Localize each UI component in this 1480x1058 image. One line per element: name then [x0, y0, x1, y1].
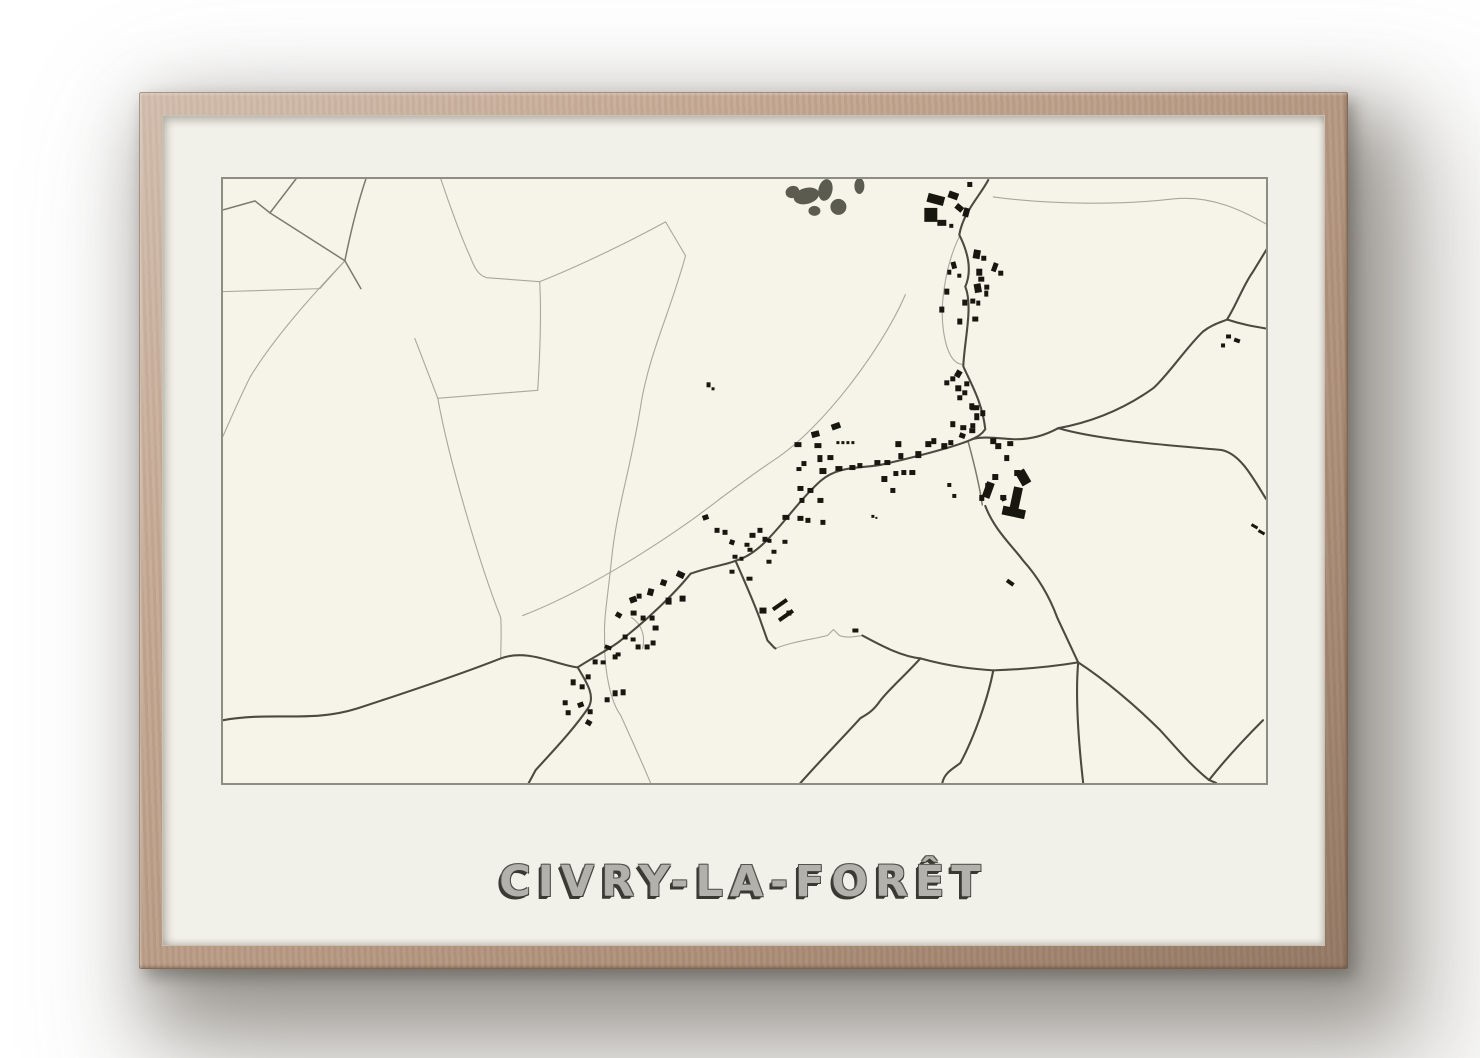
road: [775, 630, 862, 649]
building: [998, 271, 1003, 276]
building: [631, 611, 637, 616]
building: [957, 319, 962, 325]
building: [601, 660, 606, 664]
building: [767, 539, 771, 543]
building: [820, 520, 825, 525]
building: [950, 421, 955, 427]
building: [893, 471, 898, 476]
building: [571, 679, 576, 685]
poster-title: CIVRY-LA-FORÊT: [221, 857, 1266, 907]
building: [786, 611, 791, 616]
building: [762, 537, 767, 542]
building: [890, 488, 895, 493]
road: [1058, 428, 1266, 499]
road: [345, 179, 366, 289]
building: [747, 548, 752, 552]
road: [1227, 320, 1266, 329]
building: [970, 299, 975, 304]
building: [1007, 441, 1013, 446]
building: [947, 270, 951, 275]
building: [759, 608, 766, 614]
building: [782, 515, 789, 520]
building: [1221, 343, 1225, 347]
building: [992, 474, 998, 480]
building: [931, 438, 936, 444]
road: [270, 213, 345, 261]
road: [993, 197, 1266, 224]
building: [782, 540, 787, 544]
road: [223, 179, 296, 213]
building: [613, 690, 618, 696]
building: [1006, 579, 1015, 587]
photo-scene: CIVRY-LA-FORÊT: [0, 0, 1480, 1058]
road: [540, 222, 666, 282]
road: [441, 179, 540, 282]
building: [650, 616, 655, 621]
building: [851, 441, 854, 444]
town-map: [223, 179, 1266, 783]
building: [745, 543, 750, 547]
building: [959, 432, 966, 439]
building: [676, 570, 686, 579]
road: [1209, 720, 1263, 780]
forest-patch: [854, 179, 864, 194]
building: [924, 208, 937, 222]
building: [947, 190, 959, 200]
forest-patch: [808, 206, 820, 216]
building: [631, 637, 636, 641]
building: [797, 516, 803, 521]
building: [874, 460, 880, 465]
building: [563, 700, 568, 705]
building: [757, 528, 762, 533]
building: [566, 710, 571, 715]
building: [666, 598, 672, 605]
building: [981, 256, 986, 261]
building: [615, 611, 623, 618]
building: [796, 467, 801, 471]
building: [944, 380, 949, 385]
building: [636, 644, 641, 649]
building: [588, 709, 593, 714]
building: [605, 697, 610, 702]
building: [723, 530, 728, 535]
building: [884, 460, 890, 465]
building: [805, 518, 810, 523]
building: [974, 413, 979, 420]
building: [651, 640, 656, 645]
poster-frame: CIVRY-LA-FORÊT: [139, 92, 1348, 969]
building: [1234, 338, 1241, 344]
building: [925, 441, 931, 447]
building: [797, 486, 803, 491]
building: [964, 381, 969, 386]
building: [836, 441, 839, 444]
building: [984, 291, 988, 297]
building: [771, 550, 776, 554]
forest-patch: [816, 179, 834, 202]
road: [223, 261, 345, 292]
building: [593, 659, 598, 664]
building: [623, 634, 628, 639]
building: [819, 468, 826, 474]
building: [955, 385, 961, 391]
building: [973, 249, 981, 259]
building: [814, 443, 821, 448]
building: [799, 498, 804, 503]
building: [982, 481, 995, 499]
building: [730, 570, 735, 574]
building: [960, 425, 966, 430]
road: [415, 338, 538, 398]
building: [746, 577, 752, 581]
building: [653, 626, 659, 631]
building: [585, 719, 593, 726]
building: [969, 428, 975, 433]
road: [959, 180, 988, 439]
building: [949, 224, 953, 228]
building: [871, 515, 874, 518]
building: [970, 405, 975, 410]
building: [1004, 455, 1009, 461]
building: [976, 301, 980, 306]
building: [1258, 529, 1266, 535]
building: [967, 182, 972, 187]
building: [831, 422, 841, 431]
building: [729, 539, 735, 545]
building: [778, 609, 794, 622]
building: [616, 652, 621, 656]
road: [1077, 662, 1083, 783]
building: [772, 598, 788, 611]
road: [736, 561, 776, 649]
building: [895, 441, 901, 447]
road: [223, 261, 345, 436]
building: [817, 455, 822, 462]
building: [680, 596, 686, 602]
building: [901, 470, 906, 475]
road: [800, 658, 920, 783]
building: [1226, 334, 1231, 338]
building: [857, 463, 862, 468]
building: [954, 203, 964, 213]
building: [707, 382, 711, 387]
map-panel: [221, 177, 1268, 785]
building: [947, 483, 951, 487]
road: [438, 398, 501, 658]
building: [647, 588, 655, 596]
building: [952, 494, 956, 498]
building: [875, 517, 877, 519]
building: [835, 466, 842, 471]
building: [984, 285, 989, 290]
building: [849, 465, 855, 470]
road: [942, 237, 963, 365]
building: [944, 289, 949, 295]
building: [972, 317, 978, 322]
road: [223, 655, 578, 720]
building: [645, 644, 650, 649]
building: [807, 488, 813, 493]
building: [740, 557, 744, 561]
building: [957, 395, 962, 400]
building: [941, 443, 947, 449]
building: [909, 470, 915, 475]
building: [715, 528, 720, 533]
building: [970, 423, 975, 428]
poster-mat: CIVRY-LA-FORÊT: [162, 115, 1325, 946]
building: [712, 387, 715, 390]
building: [957, 274, 961, 278]
building: [660, 579, 668, 587]
building: [915, 451, 921, 458]
road: [1078, 662, 1216, 783]
building: [749, 533, 755, 538]
building: [801, 461, 806, 466]
building: [950, 376, 955, 381]
building: [898, 453, 903, 459]
building: [991, 262, 999, 272]
road: [538, 282, 541, 391]
building: [641, 616, 646, 621]
building: [846, 441, 849, 444]
building: [733, 555, 738, 559]
building: [962, 300, 967, 306]
building: [962, 390, 967, 395]
building: [827, 455, 833, 460]
building: [766, 560, 771, 564]
building: [950, 261, 957, 269]
building: [811, 430, 820, 438]
building: [995, 443, 1001, 449]
building: [841, 441, 844, 444]
building: [881, 476, 887, 482]
building: [621, 689, 626, 695]
building: [978, 277, 984, 282]
building: [926, 193, 945, 206]
building: [939, 307, 944, 313]
building: [974, 283, 982, 293]
building: [580, 684, 585, 689]
building: [629, 596, 638, 604]
building: [586, 674, 591, 679]
building: [980, 410, 985, 416]
building: [852, 629, 858, 633]
building: [948, 440, 953, 445]
building: [976, 269, 982, 276]
building: [1251, 523, 1259, 529]
building: [937, 220, 946, 226]
road: [985, 506, 1078, 662]
forest-patch: [830, 199, 846, 215]
building: [702, 514, 709, 521]
road: [604, 222, 685, 783]
building: [794, 442, 801, 447]
road: [942, 670, 993, 783]
building: [637, 594, 642, 599]
building: [817, 498, 823, 503]
road: [862, 635, 1078, 670]
building: [577, 701, 584, 708]
